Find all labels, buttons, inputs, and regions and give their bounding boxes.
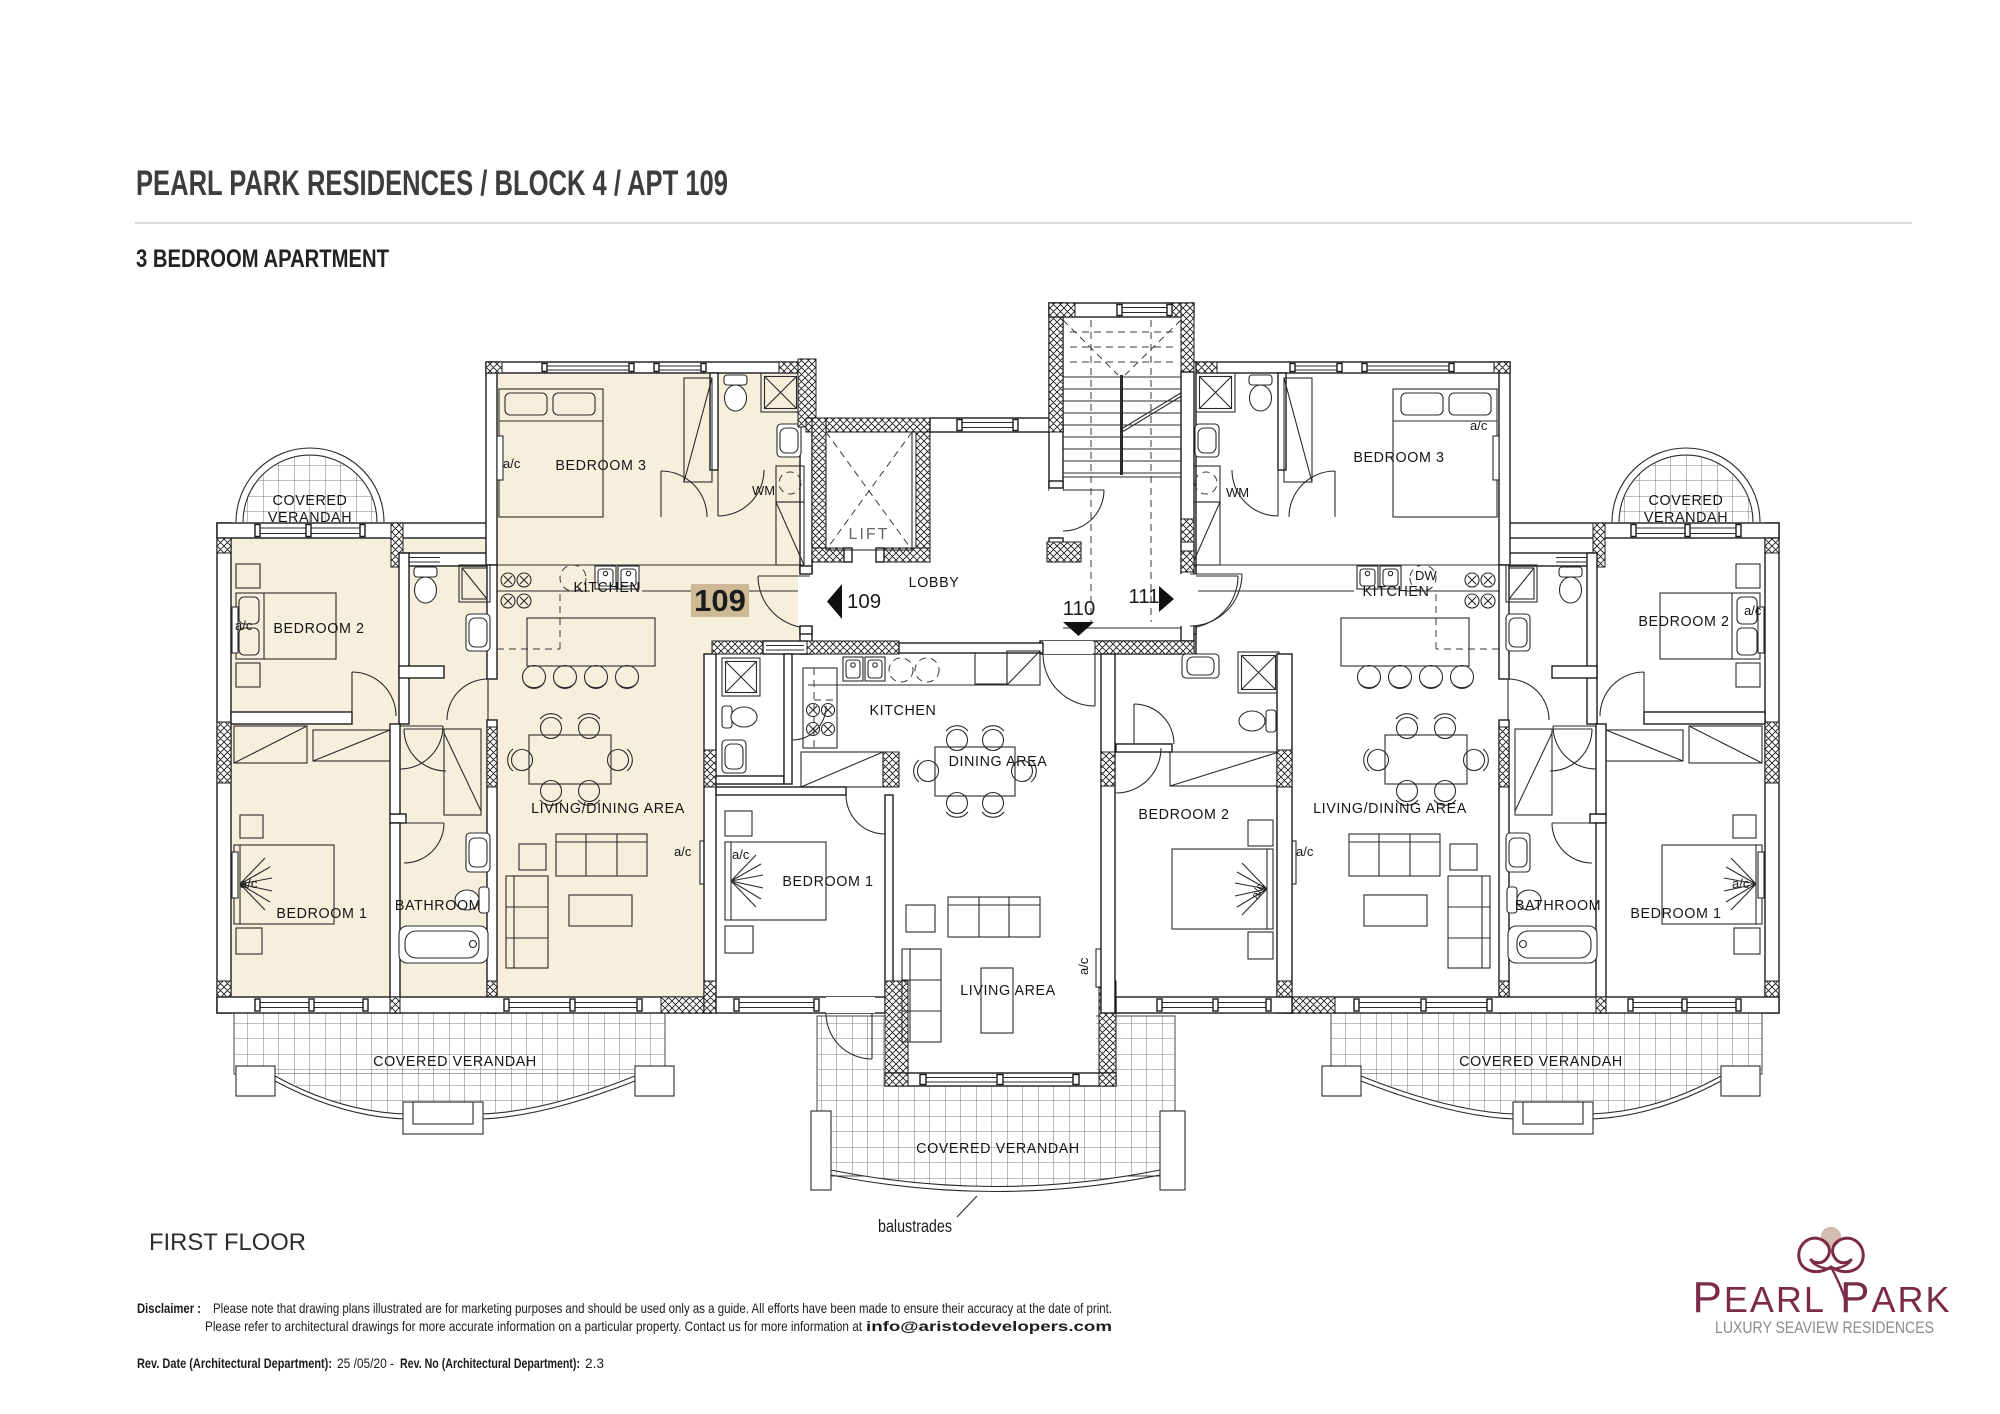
svg-text:Please refer to architectural: Please refer to architectural drawings f… bbox=[205, 1318, 862, 1334]
svg-text:PEARL PARK: PEARL PARK bbox=[1692, 1273, 1951, 1322]
svg-text:VERANDAH: VERANDAH bbox=[268, 510, 352, 526]
svg-text:BEDROOM 3: BEDROOM 3 bbox=[1353, 450, 1444, 466]
svg-text:LIVING/DINING AREA: LIVING/DINING AREA bbox=[531, 801, 685, 817]
svg-text:LIFT: LIFT bbox=[849, 526, 890, 543]
svg-text:COVERED VERANDAH: COVERED VERANDAH bbox=[916, 1141, 1080, 1157]
svg-text:COVERED VERANDAH: COVERED VERANDAH bbox=[373, 1054, 537, 1070]
svg-text:a/c: a/c bbox=[240, 876, 258, 891]
svg-text:WM: WM bbox=[752, 483, 775, 498]
svg-text:a/c: a/c bbox=[235, 618, 253, 633]
svg-text:COVERED VERANDAH: COVERED VERANDAH bbox=[1459, 1054, 1623, 1070]
svg-text:LIVING/DINING AREA: LIVING/DINING AREA bbox=[1313, 801, 1467, 817]
svg-text:COVERED: COVERED bbox=[1649, 493, 1724, 509]
svg-text:BEDROOM 2: BEDROOM 2 bbox=[273, 621, 364, 637]
svg-text:DINING AREA: DINING AREA bbox=[949, 754, 1048, 770]
svg-text:110: 110 bbox=[1063, 597, 1096, 620]
svg-text:2.3: 2.3 bbox=[585, 1355, 604, 1371]
svg-text:BEDROOM 1: BEDROOM 1 bbox=[276, 906, 367, 922]
svg-text:a/c: a/c bbox=[732, 847, 750, 862]
svg-text:LIVING AREA: LIVING AREA bbox=[960, 983, 1056, 999]
svg-text:a/c: a/c bbox=[674, 844, 692, 859]
svg-text:BATHROOM: BATHROOM bbox=[395, 898, 481, 914]
svg-text:Rev. No (Architectural Departm: Rev. No (Architectural Department): bbox=[400, 1355, 580, 1371]
svg-text:BATHROOM: BATHROOM bbox=[1515, 898, 1601, 914]
svg-text:KITCHEN: KITCHEN bbox=[1363, 584, 1430, 600]
svg-text:LUXURY SEAVIEW RESIDENCES: LUXURY SEAVIEW RESIDENCES bbox=[1715, 1319, 1934, 1337]
svg-text:WM: WM bbox=[1226, 485, 1249, 500]
svg-text:3 BEDROOM APARTMENT: 3 BEDROOM APARTMENT bbox=[136, 245, 389, 273]
svg-text:a/c: a/c bbox=[1076, 957, 1091, 975]
svg-text:109: 109 bbox=[847, 590, 881, 613]
svg-text:a/c: a/c bbox=[1470, 418, 1488, 433]
svg-text:PEARL PARK RESIDENCES / BLOCK: PEARL PARK RESIDENCES / BLOCK 4 / APT 10… bbox=[136, 164, 728, 203]
svg-text:25 /05/20 -: 25 /05/20 - bbox=[337, 1355, 394, 1371]
svg-text:LOBBY: LOBBY bbox=[909, 575, 960, 591]
svg-text:KITCHEN: KITCHEN bbox=[870, 703, 937, 719]
svg-text:Disclaimer :: Disclaimer : bbox=[137, 1300, 201, 1316]
svg-text:Rev. Date (Architectural Depar: Rev. Date (Architectural Department): bbox=[137, 1355, 332, 1371]
svg-text:BEDROOM 3: BEDROOM 3 bbox=[555, 458, 646, 474]
svg-text:KITCHEN: KITCHEN bbox=[574, 580, 641, 596]
svg-text:BEDROOM 1: BEDROOM 1 bbox=[1630, 906, 1721, 922]
svg-text:a/c: a/c bbox=[1732, 876, 1750, 891]
svg-text:a/c: a/c bbox=[1296, 844, 1314, 859]
svg-text:COVERED: COVERED bbox=[273, 493, 348, 509]
svg-text:BEDROOM 1: BEDROOM 1 bbox=[782, 874, 873, 890]
svg-text:VERANDAH: VERANDAH bbox=[1644, 510, 1728, 526]
svg-text:BEDROOM 2: BEDROOM 2 bbox=[1638, 614, 1729, 630]
svg-text:DW: DW bbox=[1415, 568, 1437, 583]
svg-text:109: 109 bbox=[694, 583, 746, 618]
svg-text:Please note that drawing plans: Please note that drawing plans illustrat… bbox=[213, 1300, 1112, 1316]
svg-text:balustrades: balustrades bbox=[878, 1216, 952, 1236]
svg-text:BEDROOM 2: BEDROOM 2 bbox=[1138, 807, 1229, 823]
svg-text:info@aristodevelopers.com: info@aristodevelopers.com bbox=[866, 1318, 1112, 1334]
svg-text:111: 111 bbox=[1128, 585, 1159, 608]
svg-text:a/c: a/c bbox=[1744, 603, 1762, 618]
svg-text:FIRST FLOOR: FIRST FLOOR bbox=[149, 1229, 306, 1256]
svg-text:a/c: a/c bbox=[503, 456, 521, 471]
